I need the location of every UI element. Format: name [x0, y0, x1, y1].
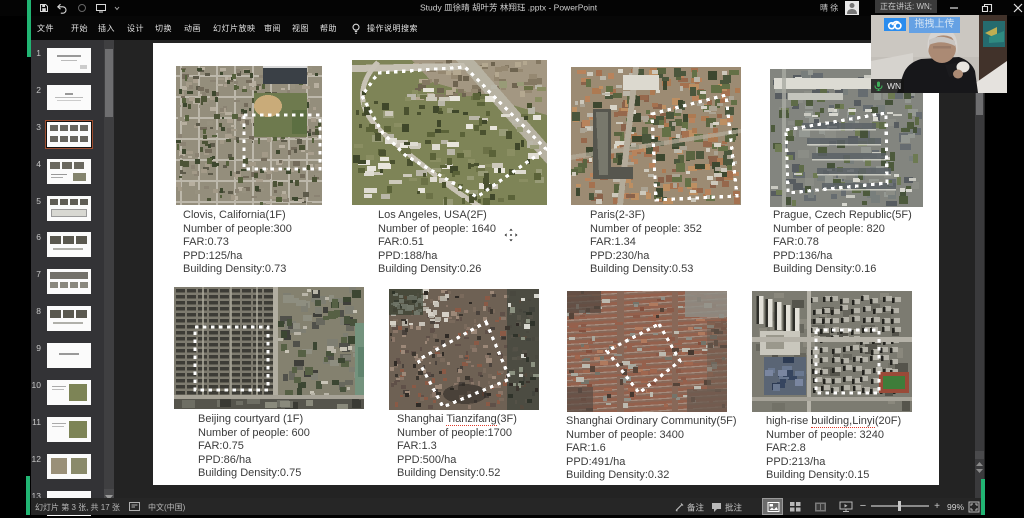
svg-text:备注: 备注 [687, 503, 705, 513]
svg-text:晴 徐: 晴 徐 [820, 3, 838, 13]
svg-text:批注: 批注 [725, 503, 743, 513]
svg-text:Study 皿徐晴 胡叶芳 林翔珏 .pptx - Powe: Study 皿徐晴 胡叶芳 林翔珏 .pptx - PowerPoint [420, 3, 598, 13]
